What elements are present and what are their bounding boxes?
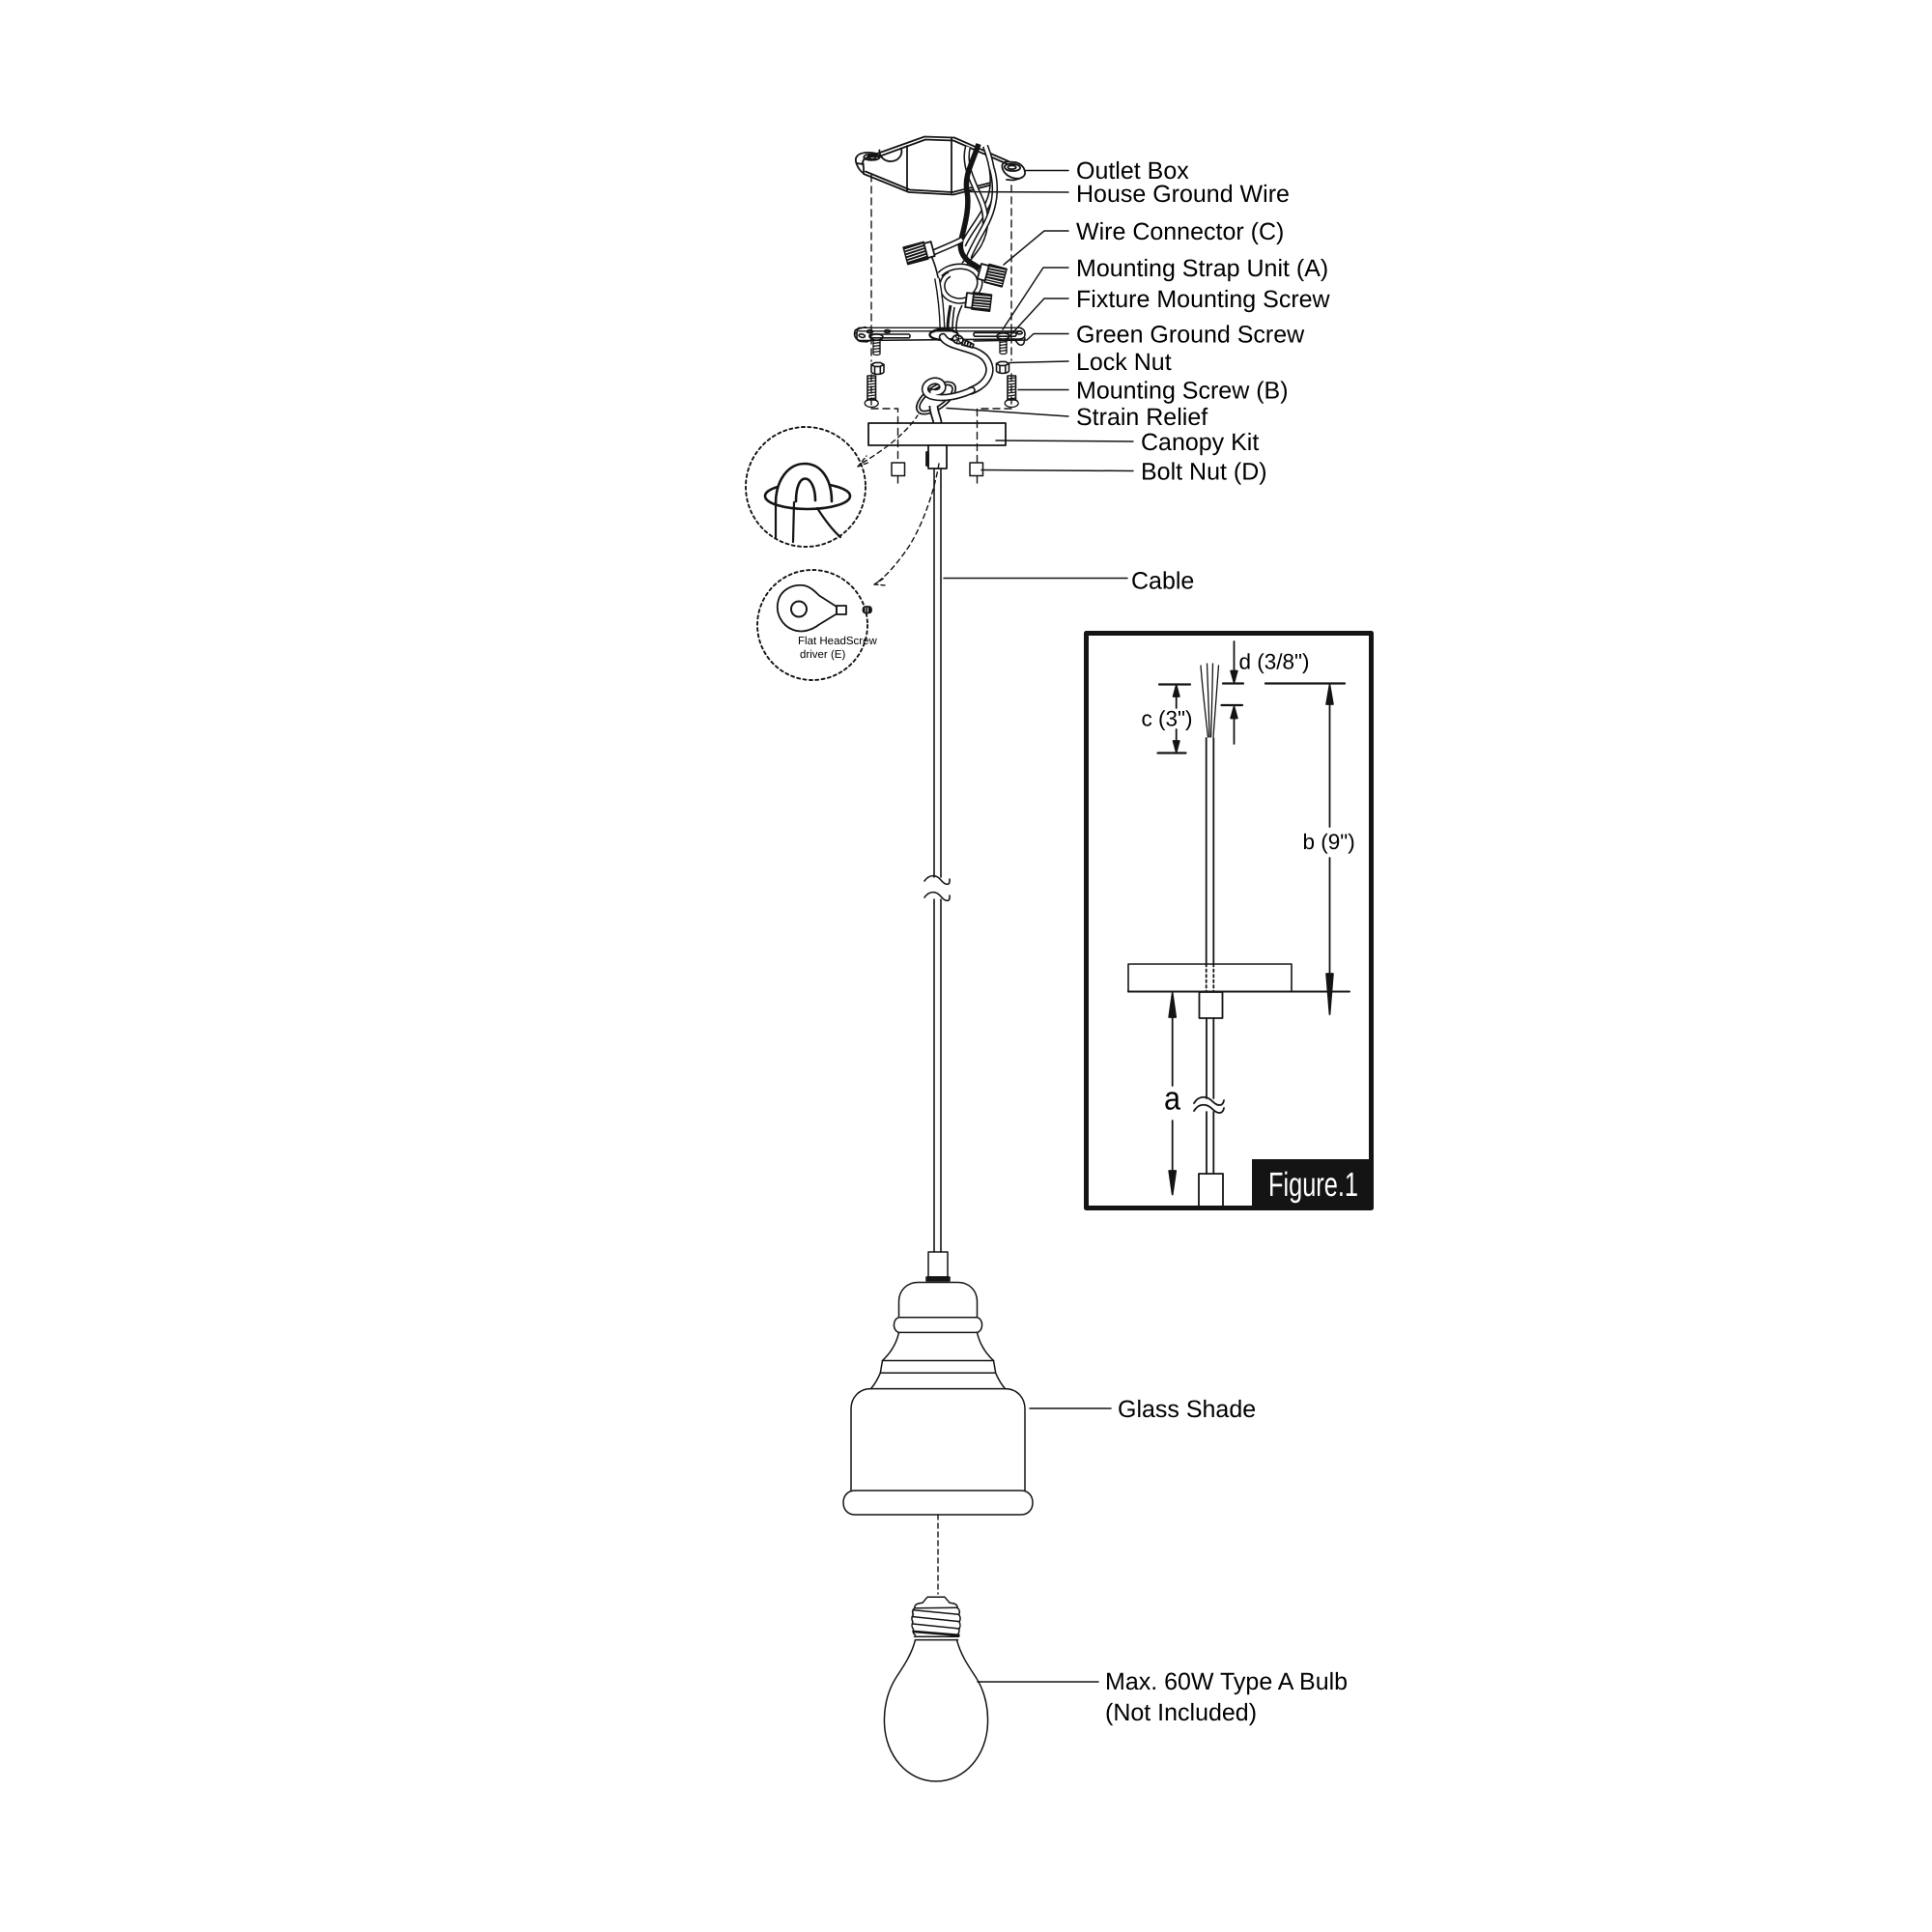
svg-text:Flat HeadScrew: Flat HeadScrew xyxy=(798,636,878,647)
svg-text:House Ground Wire: House Ground Wire xyxy=(1076,181,1290,208)
svg-text:(Not Included): (Not Included) xyxy=(1105,1699,1257,1726)
svg-text:d (3/8"): d (3/8") xyxy=(1239,650,1310,674)
svg-text:Cable: Cable xyxy=(1131,568,1194,595)
svg-text:Wire Connector (C): Wire Connector (C) xyxy=(1076,218,1284,245)
svg-text:Mounting Strap Unit (A): Mounting Strap Unit (A) xyxy=(1076,255,1328,282)
svg-text:Green Ground Screw: Green Ground Screw xyxy=(1076,322,1305,349)
svg-text:Glass Shade: Glass Shade xyxy=(1118,1396,1256,1423)
svg-text:Max. 60W Type A Bulb: Max. 60W Type A Bulb xyxy=(1105,1668,1348,1695)
svg-text:Canopy Kit: Canopy Kit xyxy=(1141,429,1259,456)
svg-text:b (9"): b (9") xyxy=(1303,830,1355,854)
svg-text:c (3"): c (3") xyxy=(1142,707,1193,731)
svg-text:Strain Relief: Strain Relief xyxy=(1076,404,1207,431)
svg-text:a: a xyxy=(1164,1081,1180,1118)
svg-text:Mounting Screw (B): Mounting Screw (B) xyxy=(1076,378,1289,405)
svg-text:Fixture Mounting Screw: Fixture Mounting Screw xyxy=(1076,286,1331,313)
svg-text:Bolt Nut (D): Bolt Nut (D) xyxy=(1141,459,1267,486)
svg-text:driver (E): driver (E) xyxy=(800,649,845,661)
svg-text:Figure.1: Figure.1 xyxy=(1268,1166,1358,1204)
svg-text:Lock Nut: Lock Nut xyxy=(1076,349,1172,376)
